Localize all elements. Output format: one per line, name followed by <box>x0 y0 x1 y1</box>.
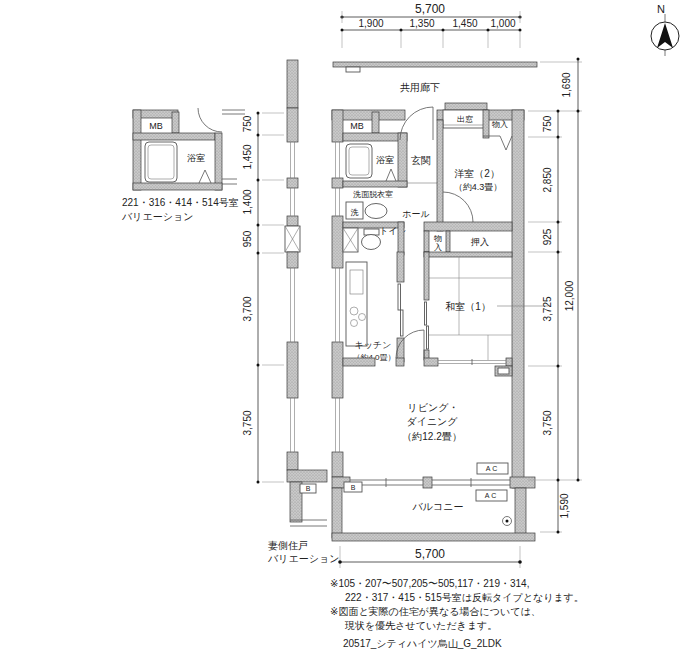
dim-right-6: 3,750 <box>542 410 553 435</box>
label-variation-caption-1: 221・316・414・514号室 <box>122 197 239 208</box>
label-closet-top: 物入 <box>491 120 508 129</box>
label-living-1: リビング・ <box>408 402 459 413</box>
bathtub <box>346 144 372 178</box>
dim-bottom-total: 5,700 <box>415 547 445 561</box>
label-closet-mid-2: 入 <box>434 243 442 252</box>
balcony: B バルコニー AC <box>332 482 535 541</box>
label-living-2: ダイニング <box>406 416 458 427</box>
label-b-box: B <box>351 484 356 491</box>
dimension-bottom: 5,700 <box>338 546 522 568</box>
label-mb-variation: MB <box>149 121 163 131</box>
floor-plan-page: 5,700 1,900 1,350 1,450 1,000 N 共用廊下 <box>0 0 700 650</box>
north-arrow-icon: N <box>651 3 679 56</box>
dimension-right: 1,690 750 2,850 925 3,725 12,000 3,750 1… <box>528 58 582 534</box>
label-bath: 浴室 <box>376 155 394 165</box>
dim-top-total: 5,700 <box>415 2 445 16</box>
common-corridor: 共用廊下 <box>333 62 537 93</box>
label-mb: MB <box>350 121 364 131</box>
label-gable-variation-1: 妻側住戸 <box>268 540 308 551</box>
toilet-bowl <box>362 235 381 250</box>
bathtub-variation <box>145 142 177 182</box>
label-entrance: 玄関 <box>411 155 431 166</box>
dim-top-seg-4: 1,000 <box>490 18 515 29</box>
dim-right-1: 1,690 <box>561 72 572 97</box>
dim-left-3: 1,400 <box>242 189 253 214</box>
drawing-code: 20517_シティハイツ烏山_G_2LDK <box>343 638 502 649</box>
dimension-top: 5,700 1,900 1,350 1,450 1,000 <box>340 2 521 48</box>
label-b-strip: B <box>306 485 311 492</box>
label-bath-variation: 浴室 <box>187 153 205 163</box>
dim-left-5: 3,700 <box>242 296 253 321</box>
dim-right-7: 1,590 <box>559 493 570 518</box>
floor-plan-drawing: 5,700 1,900 1,350 1,450 1,000 N 共用廊下 <box>0 0 700 650</box>
gable-variation-strip: B 妻側住戸 バリエーション <box>267 60 339 564</box>
japanese-room: 和室（1） <box>429 257 548 360</box>
label-washroom: 洗面脱衣室 <box>353 190 393 199</box>
dimension-left: 750 1,450 1,400 950 3,700 3,750 <box>242 112 284 484</box>
dim-left-6: 3,750 <box>242 410 253 435</box>
label-balcony: バルコニー <box>412 501 464 512</box>
label-living-area: （約12.2畳） <box>402 431 461 442</box>
folding-door-variation <box>199 170 211 183</box>
western-room-door-arc <box>443 192 473 222</box>
main-plan: 出窓 MB 浴室 玄関 物入 洋室（2） <box>332 103 548 541</box>
label-kitchen: キッチン <box>355 340 392 350</box>
note-line-2: 222・317・415・515号室は反転タイプとなります。 <box>345 592 584 603</box>
dim-top-seg-2: 1,350 <box>409 18 434 29</box>
dim-right-total: 12,000 <box>564 280 575 311</box>
kitchen-counter <box>346 262 367 346</box>
variation-plan-small: MB 浴室 221・316・414・514号室 バリエーション <box>121 108 245 222</box>
label-bay-window: 出窓 <box>457 115 473 124</box>
wash-basin <box>365 204 387 219</box>
note-line-1: ※105・207〜507,205〜505,117・219・314, <box>330 578 529 589</box>
note-line-3: ※図面と実際の住宅が異なる場合については、 <box>330 606 541 617</box>
living-dining: リビング・ ダイニング （約12.2畳） AC <box>402 402 508 474</box>
label-western-room-area: （約4.3畳） <box>454 182 503 192</box>
label-oshiire: 押入 <box>470 237 489 247</box>
label-closet-mid-1: 物 <box>433 234 442 243</box>
label-japanese-room: 和室（1） <box>445 301 491 312</box>
label-variation-caption-2: バリエーション <box>121 211 193 222</box>
bath-folding-door <box>386 169 396 181</box>
dim-right-5: 3,725 <box>542 296 553 321</box>
dim-left-4: 950 <box>242 230 253 247</box>
dim-right-3: 2,850 <box>542 167 553 192</box>
label-ac-balcony: AC <box>485 492 499 499</box>
closet-bifold-door <box>500 136 512 150</box>
dim-left-1: 750 <box>242 115 253 132</box>
dim-top-seg-3: 1,450 <box>452 18 477 29</box>
dim-right-2: 750 <box>542 115 553 132</box>
label-western-room: 洋室（2） <box>454 168 500 179</box>
label-corridor: 共用廊下 <box>400 82 440 93</box>
north-label: N <box>657 3 665 15</box>
label-hall: ホール <box>402 209 429 219</box>
dim-left-2: 1,450 <box>242 144 253 169</box>
note-line-4: 現状を優先させていただきます。 <box>344 620 497 631</box>
footer-notes: ※105・207〜507,205〜505,117・219・314, 222・31… <box>330 578 584 649</box>
dim-right-4: 925 <box>542 228 553 245</box>
dim-top-seg-1: 1,900 <box>358 18 383 29</box>
label-gable-variation-2: バリエーション <box>267 553 339 564</box>
label-washer: 洗 <box>351 208 359 217</box>
kitchen: キッチン （約4.0畳） <box>346 262 396 362</box>
label-ac-indoor: AC <box>486 465 500 472</box>
